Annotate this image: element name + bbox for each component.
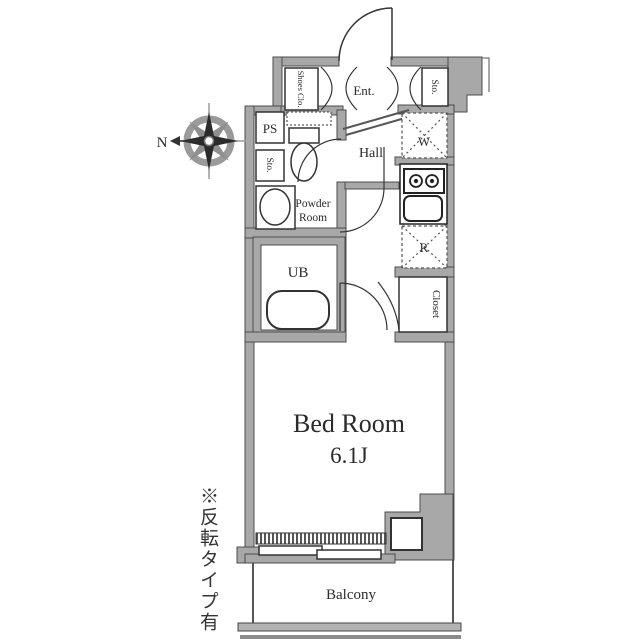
label-powder-room-2: Room <box>299 212 327 224</box>
powder-sink <box>256 186 295 229</box>
label-bedroom-size: 6.1J <box>330 443 368 468</box>
kitchen-unit <box>400 164 447 224</box>
label-hall: Hall <box>359 146 383 161</box>
label-storage-left: Sto. <box>264 157 274 172</box>
wall-upper-left-vertical <box>273 57 282 114</box>
wall-closet-bottom <box>395 332 454 342</box>
toilet-tank <box>289 128 319 143</box>
mirror-type-note: ※反転タイプ有 <box>194 486 220 640</box>
label-shoes-closet: Shoes Clo. <box>296 71 306 108</box>
floor-plan-drawing: N Shoes Clo. Ent. Sto. PS Sto. Powder Ro… <box>0 0 640 640</box>
label-balcony: Balcony <box>326 587 376 603</box>
entrance-door <box>339 8 392 61</box>
label-storage-top: Sto. <box>429 79 439 94</box>
label-closet: Closet <box>430 290 442 318</box>
sink-basin <box>260 189 290 225</box>
window-hatch-band <box>256 533 386 544</box>
burner-left-dot <box>414 179 417 182</box>
toilet-shelf <box>287 112 331 125</box>
pillar-top-right <box>448 57 482 112</box>
label-unit-bath: UB <box>288 265 309 281</box>
kitchen-sink <box>404 196 442 221</box>
wall-top-left <box>273 57 339 66</box>
compass-hub <box>205 137 214 146</box>
sliding-panel-left <box>259 546 322 555</box>
label-washer: W <box>418 134 431 149</box>
balcony-rail <box>238 623 461 631</box>
label-bedroom: Bed Room <box>293 409 405 438</box>
wall-powder-right-upper <box>337 110 346 140</box>
label-entrance: Ent. <box>353 83 374 98</box>
wall-hall-kitchen <box>345 182 399 189</box>
north-label: N <box>157 135 168 151</box>
wall-bedroom-top <box>245 332 346 342</box>
bathtub <box>267 291 329 329</box>
neighbor-outline <box>482 58 489 92</box>
burner-right-dot <box>430 179 433 182</box>
label-pipe-space: PS <box>263 121 277 136</box>
label-refrigerator: R <box>420 240 429 255</box>
wall-top-right <box>391 57 448 66</box>
north-arrow-head <box>170 136 180 146</box>
compass: N <box>157 101 249 180</box>
pillar-void <box>391 518 422 550</box>
label-powder-room-1: Powder <box>295 198 330 210</box>
balcony-outer-rail <box>240 635 461 639</box>
sliding-panel-right <box>317 550 381 559</box>
floor-plan-page: N Shoes Clo. Ent. Sto. PS Sto. Powder Ro… <box>0 0 640 640</box>
